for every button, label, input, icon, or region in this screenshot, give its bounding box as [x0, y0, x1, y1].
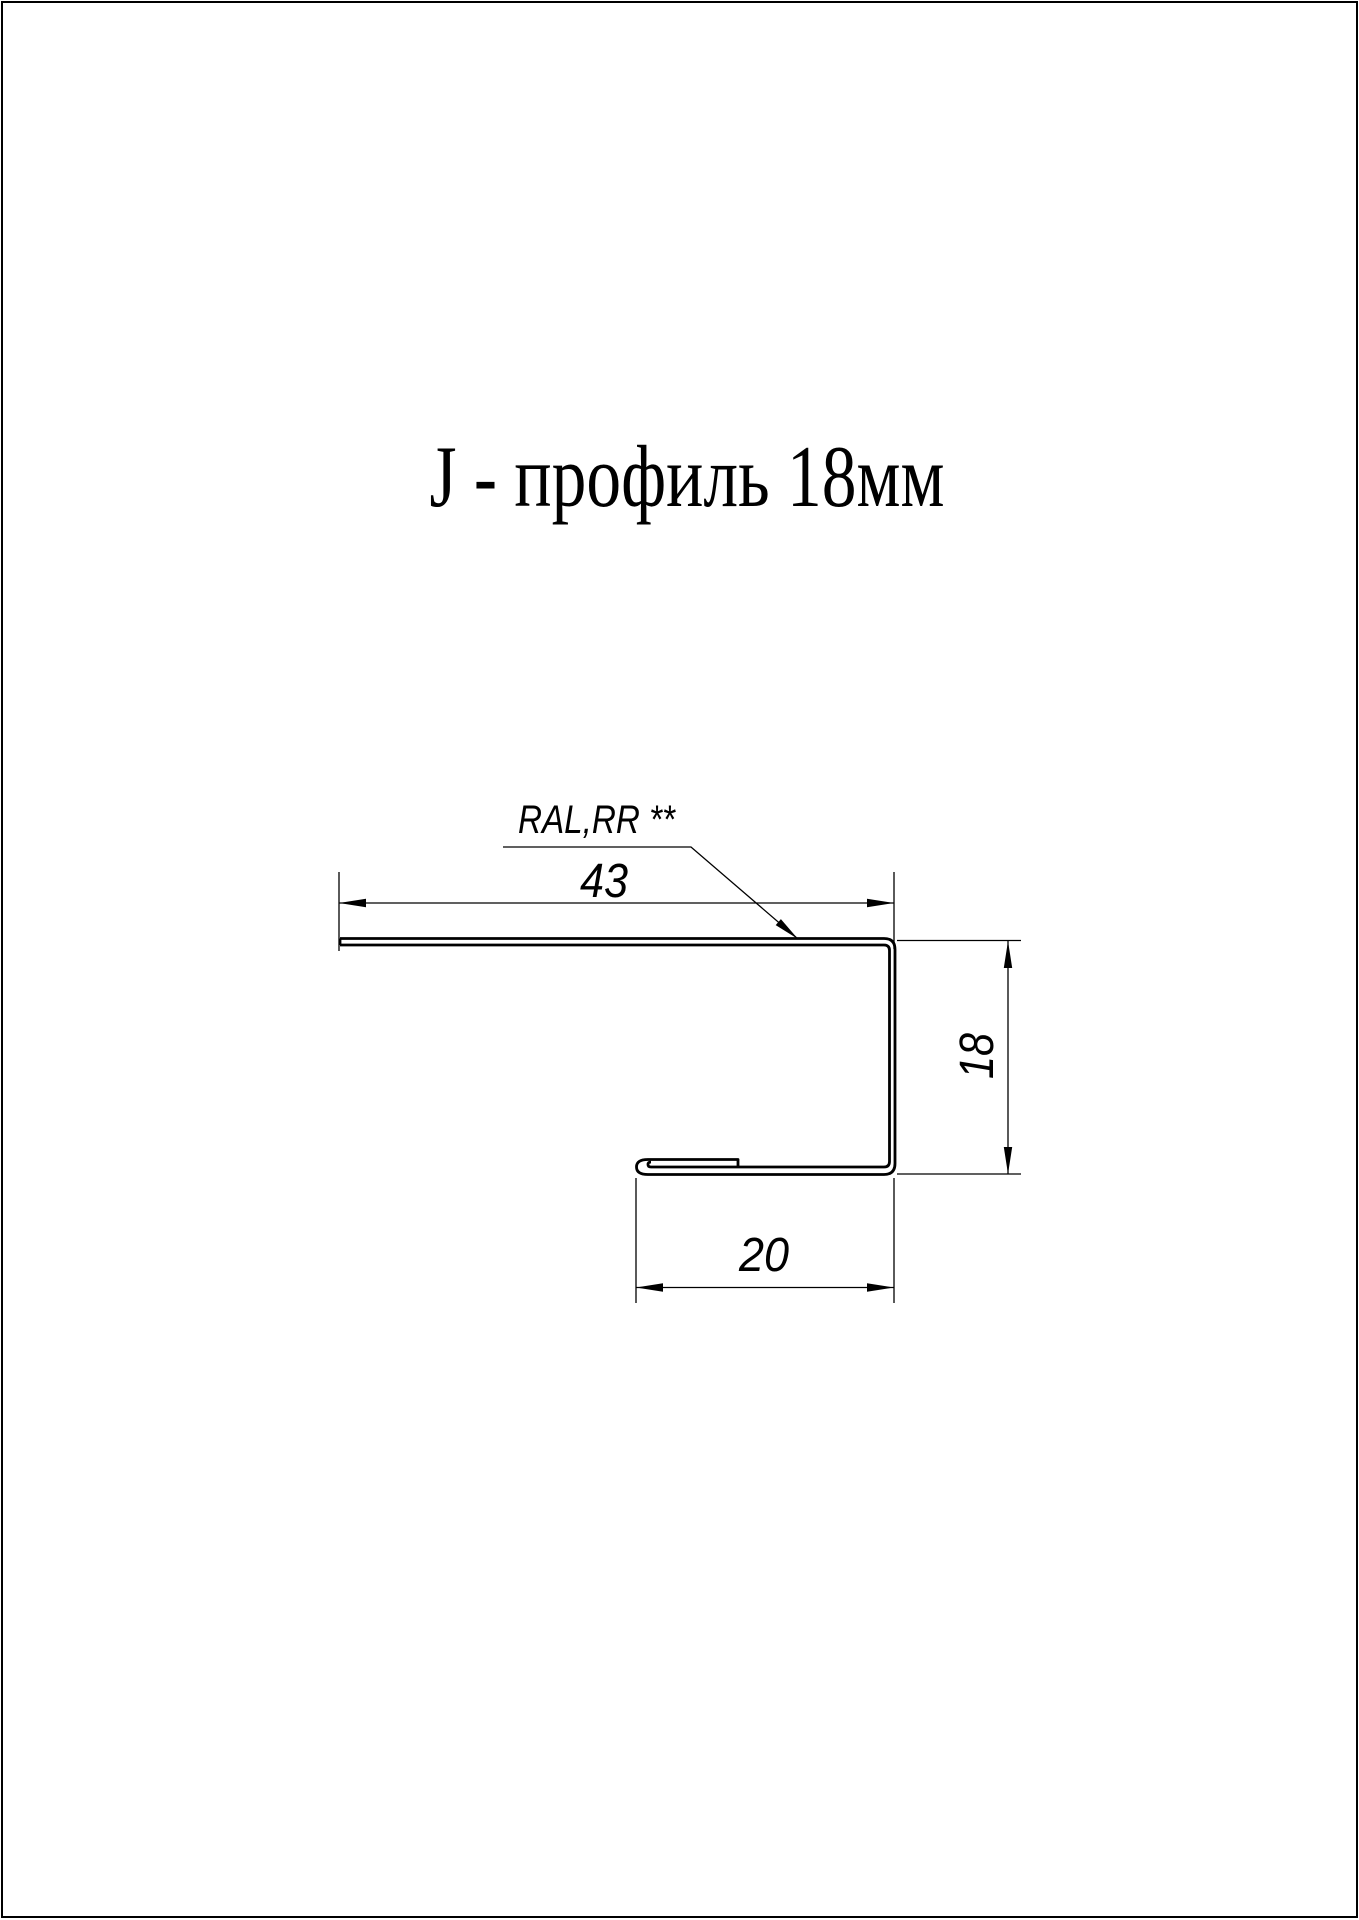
leader-arrow-icon [776, 919, 798, 939]
page-border [2, 2, 1357, 1917]
dimension-bottom-width: 20 [636, 1178, 894, 1303]
page-title: J - профиль 18мм [430, 429, 945, 526]
dimension-arrow-right-icon [867, 1283, 894, 1291]
dimension-value-bottom-width: 20 [738, 1229, 789, 1282]
dimension-arrow-left-icon [339, 899, 366, 907]
profile-outer-surface [340, 939, 895, 1175]
dimension-value-top-width: 43 [580, 855, 628, 908]
material-label: RAL,RR ** [518, 798, 676, 842]
material-leader: RAL,RR ** [503, 798, 798, 939]
dimension-arrow-right-icon [867, 899, 894, 907]
dimension-value-height: 18 [951, 1033, 1004, 1079]
dimension-arrow-left-icon [636, 1283, 663, 1291]
dimension-arrow-top-icon [1004, 941, 1012, 968]
dimension-arrow-bottom-icon [1004, 1147, 1012, 1174]
leader-line [503, 847, 798, 939]
dimension-height: 18 [897, 941, 1021, 1175]
profile-inner-surface [340, 945, 890, 1167]
drawing-sheet: J - профиль 18мм 43 18 [0, 0, 1359, 1920]
profile-outline [340, 939, 895, 1175]
dimension-top-width: 43 [339, 855, 894, 951]
technical-drawing-canvas: J - профиль 18мм 43 18 [0, 0, 1359, 1920]
